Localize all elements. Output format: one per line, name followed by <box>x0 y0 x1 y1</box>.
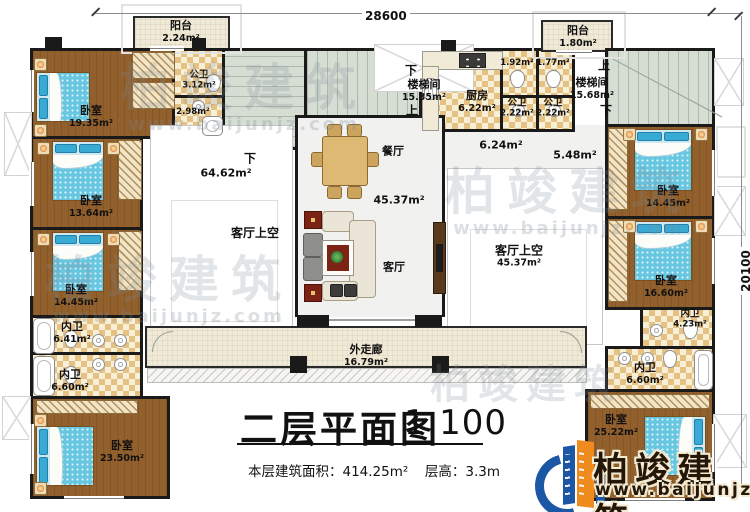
label-corridor: 外走廊16.79m² <box>344 344 388 368</box>
stair-right-down: 下 <box>600 102 612 119</box>
label-bedroom-tl: 卧室19.35m² <box>69 105 113 129</box>
label-bedroom-l3: 卧室14.45m² <box>54 284 98 308</box>
room-name: 客厅上空 <box>495 243 543 257</box>
room-area: 6.41m² <box>53 334 91 345</box>
nightstand <box>34 124 47 137</box>
room-name: 公卫 <box>536 97 570 108</box>
room-area: 45.37m² <box>495 257 543 268</box>
window <box>64 496 124 501</box>
title-underline <box>237 443 483 445</box>
nightstand <box>695 128 708 141</box>
label-bath-r2: 内卫6.60m² <box>626 362 664 386</box>
bed-pillows <box>37 427 50 485</box>
wardrobe <box>590 394 710 409</box>
bed <box>634 221 692 281</box>
corridor-steps <box>147 368 587 383</box>
room-area: 23.50m² <box>100 453 144 464</box>
side-table <box>304 284 322 302</box>
bed <box>36 426 94 486</box>
room-name: 公卫 <box>500 97 534 108</box>
window <box>29 70 34 112</box>
label-bath-tl2: 2.98m² <box>176 107 210 117</box>
label-bath-l2: 内卫6.60m² <box>51 369 89 393</box>
shower-tray <box>202 116 223 136</box>
plan-scale: 1:100 <box>404 403 507 443</box>
logo-building-bar <box>563 445 575 505</box>
baijun-logo: 柏竣建筑 www.baijunjz.com <box>505 408 748 508</box>
bed-pillows <box>635 130 691 143</box>
window <box>150 46 184 51</box>
wall-notch <box>441 40 456 51</box>
bed-pillows <box>53 233 103 246</box>
label-bath-r1: 内卫4.23m² <box>673 308 707 329</box>
room-area: 3.12m² <box>182 81 216 91</box>
label-dining: 餐厅 <box>382 146 404 159</box>
bed-pillows <box>635 222 691 235</box>
sink <box>92 358 105 371</box>
label-stair-left: 楼梯间15.35m² <box>402 79 446 103</box>
room-area: 45.37m² <box>373 195 424 208</box>
nightstand <box>34 58 47 71</box>
chair <box>347 186 362 199</box>
void-left-down: 下 <box>244 150 256 167</box>
wardrobe <box>118 140 142 200</box>
chair <box>327 186 342 199</box>
window <box>712 238 717 284</box>
label-pass2: 5.48m² <box>553 150 596 163</box>
label-bedroom-l2: 卧室13.64m² <box>69 195 113 219</box>
window <box>29 162 34 206</box>
plant <box>331 251 343 263</box>
nightstand <box>107 233 120 246</box>
stair-left-down: 下 <box>405 62 417 79</box>
wardrobe <box>132 52 175 79</box>
room-name: 楼梯间 <box>402 79 446 92</box>
room-area: 4.23m² <box>673 320 707 330</box>
room-name: 卧室 <box>646 185 690 198</box>
sink <box>650 324 663 337</box>
label-bedroom-r2: 卧室16.60m² <box>644 275 688 299</box>
bed <box>52 141 104 201</box>
wall-stub <box>297 315 329 327</box>
tv-cabinet <box>433 222 446 294</box>
room-area: 15.68m² <box>570 90 614 101</box>
room-name: 楼梯间 <box>570 77 614 90</box>
room-area: 6.60m² <box>51 382 89 393</box>
label-void-left-area: 64.62m² <box>200 168 251 181</box>
label-bath-c2: 公卫2.22m² <box>500 97 534 118</box>
room-name: 内卫 <box>53 321 91 334</box>
window-well-marker <box>4 112 32 176</box>
bed-mattress <box>50 427 93 485</box>
nightstand <box>623 128 636 141</box>
logo-site-text: www.baijunjz.com <box>595 480 750 500</box>
label-living: 客厅 <box>383 262 405 275</box>
room-area: 2.98m² <box>176 107 210 117</box>
cushion <box>330 284 343 297</box>
nightstand <box>37 233 50 246</box>
label-bedroom-r1: 卧室14.45m² <box>646 185 690 209</box>
bathtub <box>694 350 713 390</box>
room-name: 客厅 <box>383 262 405 275</box>
floor-plan-canvas: 阳台2.24m² 卧室19.35m² 公卫3.12m² 2.98m² 卧室13.… <box>0 0 750 512</box>
wall-stub <box>415 315 442 327</box>
nightstand <box>107 142 120 155</box>
room-name: 厨房 <box>458 90 496 103</box>
room-area: 2.24m² <box>162 33 200 44</box>
nightstand <box>623 220 636 233</box>
wardrobe <box>132 82 175 109</box>
area-label: 本层建筑面积： <box>248 464 343 480</box>
room-area: 14.45m² <box>646 198 690 209</box>
room-area: 13.64m² <box>69 208 113 219</box>
sink <box>114 334 127 347</box>
armchair <box>303 233 323 257</box>
column <box>432 356 449 373</box>
wardrobe <box>118 231 142 291</box>
window-well-marker <box>714 58 744 106</box>
label-center-area: 45.37m² <box>373 195 424 208</box>
label-kitchen: 厨房6.22m² <box>458 90 496 114</box>
floor-height-label: 层高： <box>425 464 466 480</box>
area-value: 414.25m² <box>343 464 409 480</box>
wardrobe <box>36 400 138 414</box>
label-bath-c1: 1.92m² <box>500 58 534 68</box>
room-name: 卧室 <box>69 105 113 118</box>
bed-pillows <box>53 142 103 155</box>
wall-notch <box>45 37 62 50</box>
label-balcony-tr: 阳台1.80m² <box>559 25 597 49</box>
column <box>290 356 307 373</box>
label-bath-c4: 公卫2.22m² <box>536 97 570 118</box>
room-area: 5.48m² <box>553 150 596 163</box>
room-name: 卧室 <box>54 284 98 297</box>
window <box>29 424 34 474</box>
room-name: 内卫 <box>673 308 707 319</box>
room-area: 1.77m² <box>536 58 570 68</box>
room-area: 64.62m² <box>200 168 251 181</box>
nightstand <box>695 220 708 233</box>
room-area: 19.35m² <box>69 118 113 129</box>
room-name: 卧室 <box>644 275 688 288</box>
label-stair-right: 楼梯间15.68m² <box>570 77 614 101</box>
label-bath-tl: 公卫3.12m² <box>182 69 216 90</box>
room-area: 2.22m² <box>536 109 570 119</box>
room-name: 公卫 <box>182 69 216 80</box>
room-area: 16.79m² <box>344 357 388 368</box>
label-bath-l1: 内卫6.41m² <box>53 321 91 345</box>
room-area: 6.60m² <box>626 375 664 386</box>
dimension-tick <box>91 7 100 16</box>
room-area: 6.22m² <box>458 103 496 114</box>
room-area: 6.24m² <box>479 140 522 153</box>
label-balcony-tl: 阳台2.24m² <box>162 20 200 44</box>
room-area: 14.45m² <box>54 297 98 308</box>
side-table <box>304 211 322 229</box>
nightstand <box>34 414 47 427</box>
cushion <box>344 284 357 297</box>
stove <box>459 53 486 68</box>
window <box>29 252 34 296</box>
room-area: 16.60m² <box>644 288 688 299</box>
bed <box>634 129 692 191</box>
logo-brand-text: 柏竣建筑 <box>593 442 748 512</box>
sink <box>92 334 105 347</box>
bathtub <box>33 318 55 354</box>
armchair <box>303 257 323 281</box>
logo-building-bar <box>577 440 594 508</box>
window-well-marker <box>2 396 31 440</box>
dimension-tick <box>707 7 716 16</box>
room-name: 内卫 <box>626 362 664 375</box>
floor-height-value: 3.3m <box>465 464 500 480</box>
sink <box>114 358 127 371</box>
window <box>712 150 717 196</box>
footer-stats: 本层建筑面积：414.25m² 层高：3.3m <box>248 460 500 480</box>
label-void-right: 客厅上空45.37m² <box>495 243 543 268</box>
room-name: 内卫 <box>51 369 89 382</box>
nightstand <box>37 142 50 155</box>
room-name: 卧室 <box>69 195 113 208</box>
dining-table <box>322 136 368 186</box>
room-name: 外走廊 <box>344 344 388 357</box>
room-area: 1.80m² <box>559 38 597 49</box>
label-void-left: 客厅上空 <box>231 226 279 240</box>
room-area: 1.92m² <box>500 58 534 68</box>
room-area: 2.22m² <box>500 109 534 119</box>
dimension-top-value: 28600 <box>362 9 410 23</box>
dimension-line-top <box>95 13 740 14</box>
room-name: 阳台 <box>162 20 200 33</box>
room-name: 客厅上空 <box>231 226 279 240</box>
label-bedroom-bl: 卧室23.50m² <box>100 440 144 464</box>
dimension-right-value: 20100 <box>739 247 750 295</box>
nightstand <box>34 482 47 495</box>
room-stair-right <box>605 48 715 127</box>
room-name: 餐厅 <box>382 146 404 159</box>
stair-left-up: 上 <box>406 102 418 119</box>
label-bath-c3: 1.77m² <box>536 58 570 68</box>
room-name: 阳台 <box>559 25 597 38</box>
stair-right-up: 上 <box>598 57 610 74</box>
bed-pillows <box>37 73 50 121</box>
room-name: 卧室 <box>100 440 144 453</box>
window <box>556 50 592 55</box>
label-pass1: 6.24m² <box>479 140 522 153</box>
